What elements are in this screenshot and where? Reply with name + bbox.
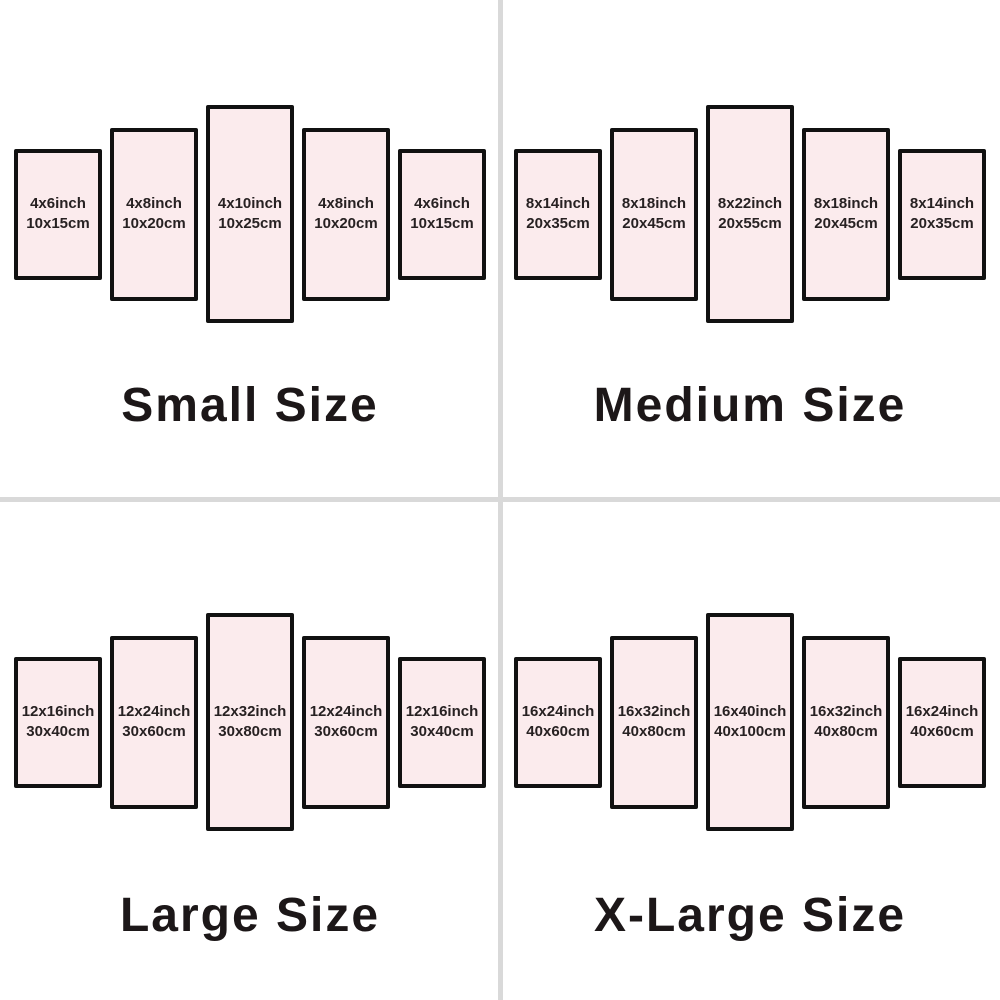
panel-cm-label: 30x60cm	[314, 722, 377, 742]
size-panel: 16x24inch 40x60cm	[898, 657, 986, 788]
size-panel: 16x32inch 40x80cm	[610, 636, 698, 809]
panel-inch-label: 12x16inch	[406, 702, 479, 722]
size-group-title: Large Size	[0, 888, 500, 943]
size-panel: 4x8inch 10x20cm	[110, 128, 198, 301]
panel-inch-label: 16x24inch	[906, 702, 979, 722]
panel-cm-label: 40x80cm	[622, 722, 685, 742]
size-panel: 12x32inch 30x80cm	[206, 613, 294, 831]
panel-cm-label: 10x15cm	[26, 214, 89, 234]
size-panel: 4x8inch 10x20cm	[302, 128, 390, 301]
panel-cm-label: 30x40cm	[410, 722, 473, 742]
panel-cm-label: 20x45cm	[622, 214, 685, 234]
size-panel: 12x24inch 30x60cm	[302, 636, 390, 809]
size-panel: 8x22inch 20x55cm	[706, 105, 794, 323]
size-group-small: 4x6inch 10x15cm 4x8inch 10x20cm 4x10inch…	[0, 0, 500, 500]
size-panel: 8x18inch 20x45cm	[802, 128, 890, 301]
size-panel: 16x40inch 40x100cm	[706, 613, 794, 831]
panel-inch-label: 12x24inch	[118, 702, 191, 722]
size-panel: 4x10inch 10x25cm	[206, 105, 294, 323]
panel-inch-label: 8x18inch	[622, 194, 686, 214]
size-panel: 12x24inch 30x60cm	[110, 636, 198, 809]
panel-group: 8x14inch 20x35cm 8x18inch 20x45cm 8x22in…	[500, 105, 1000, 323]
size-panel: 8x14inch 20x35cm	[898, 149, 986, 280]
size-panel: 16x32inch 40x80cm	[802, 636, 890, 809]
size-panel: 4x6inch 10x15cm	[398, 149, 486, 280]
panel-cm-label: 30x80cm	[218, 722, 281, 742]
panel-inch-label: 4x8inch	[126, 194, 182, 214]
panel-cm-label: 10x25cm	[218, 214, 281, 234]
size-group-medium: 8x14inch 20x35cm 8x18inch 20x45cm 8x22in…	[500, 0, 1000, 500]
panel-inch-label: 4x8inch	[318, 194, 374, 214]
panel-inch-label: 16x24inch	[522, 702, 595, 722]
size-panel: 8x18inch 20x45cm	[610, 128, 698, 301]
panel-group: 12x16inch 30x40cm 12x24inch 30x60cm 12x3…	[0, 613, 500, 831]
panel-cm-label: 10x20cm	[314, 214, 377, 234]
panel-inch-label: 8x18inch	[814, 194, 878, 214]
panel-cm-label: 40x60cm	[526, 722, 589, 742]
size-chart-image: 4x6inch 10x15cm 4x8inch 10x20cm 4x10inch…	[0, 0, 1000, 1000]
panel-inch-label: 16x32inch	[810, 702, 883, 722]
panel-cm-label: 20x35cm	[910, 214, 973, 234]
size-panel: 12x16inch 30x40cm	[14, 657, 102, 788]
panel-cm-label: 10x20cm	[122, 214, 185, 234]
size-panel: 16x24inch 40x60cm	[514, 657, 602, 788]
panel-cm-label: 40x100cm	[714, 722, 786, 742]
size-panel: 12x16inch 30x40cm	[398, 657, 486, 788]
panel-inch-label: 8x14inch	[526, 194, 590, 214]
panel-cm-label: 30x40cm	[26, 722, 89, 742]
size-group-large: 12x16inch 30x40cm 12x24inch 30x60cm 12x3…	[0, 500, 500, 1000]
panel-inch-label: 12x32inch	[214, 702, 287, 722]
panel-cm-label: 20x45cm	[814, 214, 877, 234]
panel-group: 4x6inch 10x15cm 4x8inch 10x20cm 4x10inch…	[0, 105, 500, 323]
panel-inch-label: 16x32inch	[618, 702, 691, 722]
panel-cm-label: 40x60cm	[910, 722, 973, 742]
panel-inch-label: 16x40inch	[714, 702, 787, 722]
panel-inch-label: 8x22inch	[718, 194, 782, 214]
size-panel: 4x6inch 10x15cm	[14, 149, 102, 280]
size-group-title: Medium Size	[500, 378, 1000, 433]
panel-cm-label: 20x55cm	[718, 214, 781, 234]
panel-cm-label: 10x15cm	[410, 214, 473, 234]
panel-inch-label: 4x10inch	[218, 194, 282, 214]
size-panel: 8x14inch 20x35cm	[514, 149, 602, 280]
panel-inch-label: 4x6inch	[30, 194, 86, 214]
size-group-title: X-Large Size	[500, 888, 1000, 943]
panel-inch-label: 12x16inch	[22, 702, 95, 722]
panel-cm-label: 40x80cm	[814, 722, 877, 742]
panel-cm-label: 20x35cm	[526, 214, 589, 234]
panel-cm-label: 30x60cm	[122, 722, 185, 742]
panel-inch-label: 8x14inch	[910, 194, 974, 214]
size-group-xlarge: 16x24inch 40x60cm 16x32inch 40x80cm 16x4…	[500, 500, 1000, 1000]
panel-inch-label: 4x6inch	[414, 194, 470, 214]
size-group-title: Small Size	[0, 378, 500, 433]
panel-inch-label: 12x24inch	[310, 702, 383, 722]
panel-group: 16x24inch 40x60cm 16x32inch 40x80cm 16x4…	[500, 613, 1000, 831]
